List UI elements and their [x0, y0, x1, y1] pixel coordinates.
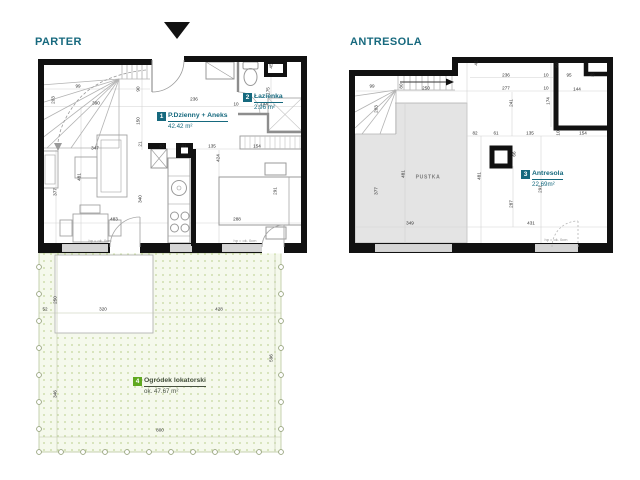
sill-height-note: hp = ok. 0cm [233, 239, 256, 243]
plan-title-parter: PARTER [35, 37, 82, 48]
entrance-door [152, 60, 184, 92]
dimension-label: 99 [75, 85, 80, 90]
room-number-badge: 2 [243, 93, 252, 102]
room-area: ok. 47.67 m² [144, 389, 206, 395]
toilet-tank [243, 62, 258, 69]
dimension-label: 203 [375, 105, 380, 113]
dimension-label: 99 [369, 85, 374, 90]
room-number-badge: 3 [521, 170, 530, 179]
sill-height-note: hp = ok. 0cm [88, 239, 111, 243]
dimension-label: 428 [215, 308, 223, 313]
room-name: P.Dzienny + Aneks [168, 112, 228, 122]
room-area: 2.96 m² [254, 105, 283, 111]
dimension-label: 481 [78, 173, 83, 181]
dimension-label: 250 [422, 87, 430, 92]
room-label-2: 2Łazienka2.96 m² [243, 93, 283, 111]
dimension-label: 287 [510, 200, 515, 208]
room-area: 22.69m² [532, 182, 563, 188]
entrance-arrow-icon [164, 22, 190, 39]
dimension-label: 135 [526, 132, 534, 137]
dimension-label: 236 [190, 98, 198, 103]
dimension-label: 10 [543, 74, 548, 79]
dimension-label: 80 [400, 83, 405, 88]
nightstand [266, 227, 286, 239]
bedroom [219, 163, 305, 239]
dimension-label: 596 [270, 354, 275, 362]
dimension-label: 42 [475, 60, 480, 65]
dimension-label: 21 [139, 141, 144, 146]
dimension-label: 800 [156, 429, 164, 434]
room-name: Ogródek lokatorski [144, 377, 206, 387]
dimension-label: 61 [493, 132, 498, 137]
floorplan-canvas: PARTER ANTRESOLA 99203390901502123610144… [0, 0, 640, 480]
dimension-label: 288 [233, 218, 241, 223]
dimension-label: 349 [406, 222, 414, 227]
room-label-1: 1P.Dzienny + Aneks42.42 m² [157, 112, 228, 130]
dimension-label: 481 [478, 172, 483, 180]
dimension-label: 174 [547, 97, 552, 105]
dimension-label: 10 [233, 103, 238, 108]
stair-patch [355, 70, 395, 134]
dimension-label: 90 [137, 86, 142, 91]
dimension-label: 61 [181, 145, 186, 150]
room-name: Antresola [532, 170, 563, 180]
dimension-label: 277 [502, 87, 510, 92]
dimension-label: 154 [253, 145, 261, 150]
room-number-badge: 1 [157, 112, 166, 121]
sofa [97, 135, 127, 197]
dimension-label: 481 [402, 170, 407, 178]
dimension-label: 52 [42, 308, 47, 313]
room-label-3: 3Antresola22.69m² [521, 170, 563, 188]
dimension-label: 241 [510, 99, 515, 107]
chair [60, 220, 72, 236]
dimension-label: 83 [159, 145, 164, 150]
dimension-label: 95 [566, 74, 571, 79]
void-label: PUSTKA [416, 176, 441, 181]
enclosed-room-walls [556, 60, 610, 128]
dimension-label: 50 [556, 62, 561, 67]
dimension-label: 424 [217, 154, 222, 162]
sill-height-note: hp = ok. 0cm [544, 238, 567, 242]
nightstand [265, 163, 286, 175]
dimension-label: 250 [54, 296, 59, 304]
dimension-label: 483 [110, 218, 118, 223]
dimension-label: 154 [579, 132, 587, 137]
dimension-label: 347 [91, 147, 99, 152]
stair-direction-arrow [54, 143, 62, 151]
bedroom-divider-wall [191, 149, 196, 246]
toilet [244, 69, 257, 86]
dimension-label: 150 [137, 117, 142, 125]
dimension-label: 49 [589, 74, 594, 79]
room-label-4: 4Ogródek lokatorskiok. 47.67 m² [133, 377, 206, 395]
terrace [55, 255, 153, 333]
dimension-label: 320 [99, 308, 107, 313]
dimension-label: 340 [139, 195, 144, 203]
dimension-label: 236 [502, 74, 510, 79]
dimension-label: 135 [208, 145, 216, 150]
stair-direction-arrow [446, 79, 454, 86]
dimension-label: 82 [472, 132, 477, 137]
room-number-badge: 4 [133, 377, 142, 386]
dimension-label: 291 [274, 187, 279, 195]
column [492, 148, 510, 166]
garden [37, 253, 284, 454]
plan-title-antresola: ANTRESOLA [350, 37, 422, 48]
parter-plan [38, 22, 307, 254]
dimension-label: 346 [54, 390, 59, 398]
bed [219, 177, 305, 225]
wardrobe [240, 136, 304, 149]
dimension-label: 66 [513, 151, 518, 156]
dimension-label: 431 [527, 222, 535, 227]
dimension-label: 377 [54, 188, 59, 196]
dimension-label: 144 [573, 88, 581, 93]
room-area: 42.42 m² [168, 124, 228, 130]
dimension-label: 390 [92, 102, 100, 107]
dimension-label: 45 [270, 63, 275, 68]
dimension-label: 203 [52, 96, 57, 104]
dimension-label: 10 [543, 87, 548, 92]
kitchen [151, 149, 190, 243]
chair [109, 220, 121, 236]
armchair [42, 151, 58, 188]
chair [80, 205, 100, 213]
dimension-label: 10 [557, 130, 562, 135]
dimension-label: 377 [375, 187, 380, 195]
room-name: Łazienka [254, 93, 283, 103]
